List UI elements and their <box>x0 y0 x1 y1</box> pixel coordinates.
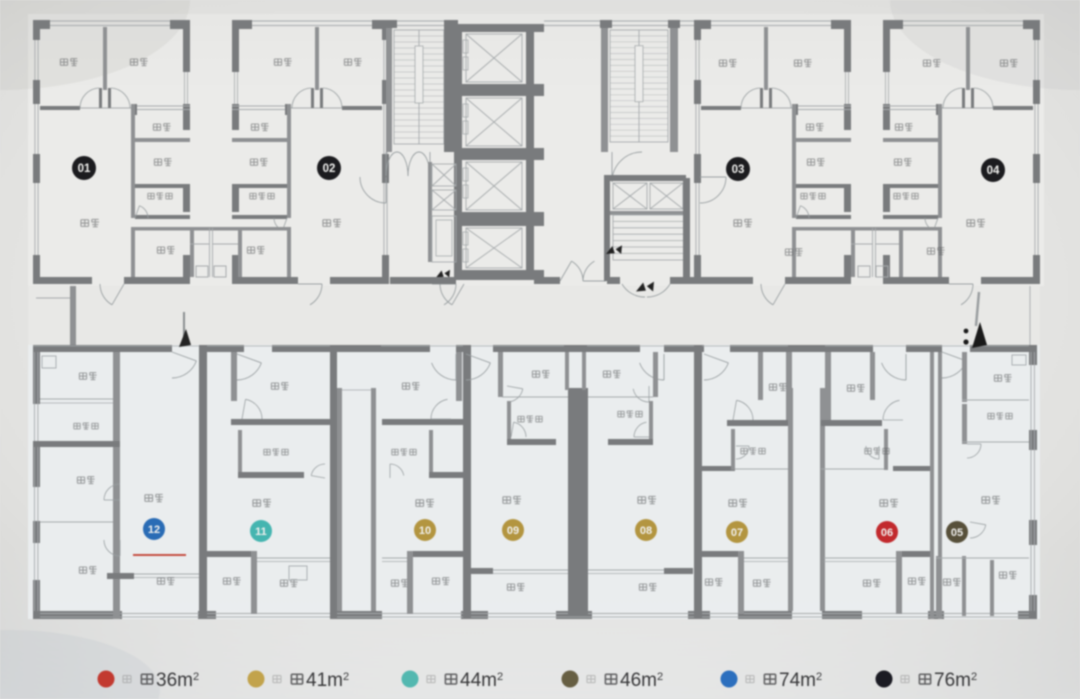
svg-text:03: 03 <box>732 164 745 176</box>
svg-text:09: 09 <box>507 525 519 537</box>
svg-text:12: 12 <box>148 524 160 536</box>
svg-text:08: 08 <box>640 525 652 537</box>
svg-text:05: 05 <box>951 527 963 539</box>
svg-text:11: 11 <box>255 526 267 538</box>
svg-text:10: 10 <box>419 525 431 537</box>
svg-text:76m2: 76m2 <box>934 670 977 691</box>
svg-text:44m2: 44m2 <box>460 670 503 691</box>
svg-text:41m2: 41m2 <box>306 670 349 691</box>
svg-text:02: 02 <box>323 163 336 175</box>
svg-text:07: 07 <box>731 527 743 539</box>
svg-text:36m2: 36m2 <box>156 670 199 691</box>
svg-text:04: 04 <box>987 165 1000 177</box>
svg-text:01: 01 <box>78 163 91 175</box>
svg-text:46m2: 46m2 <box>620 670 663 691</box>
svg-text:74m2: 74m2 <box>779 670 822 691</box>
svg-text:06: 06 <box>881 527 893 539</box>
